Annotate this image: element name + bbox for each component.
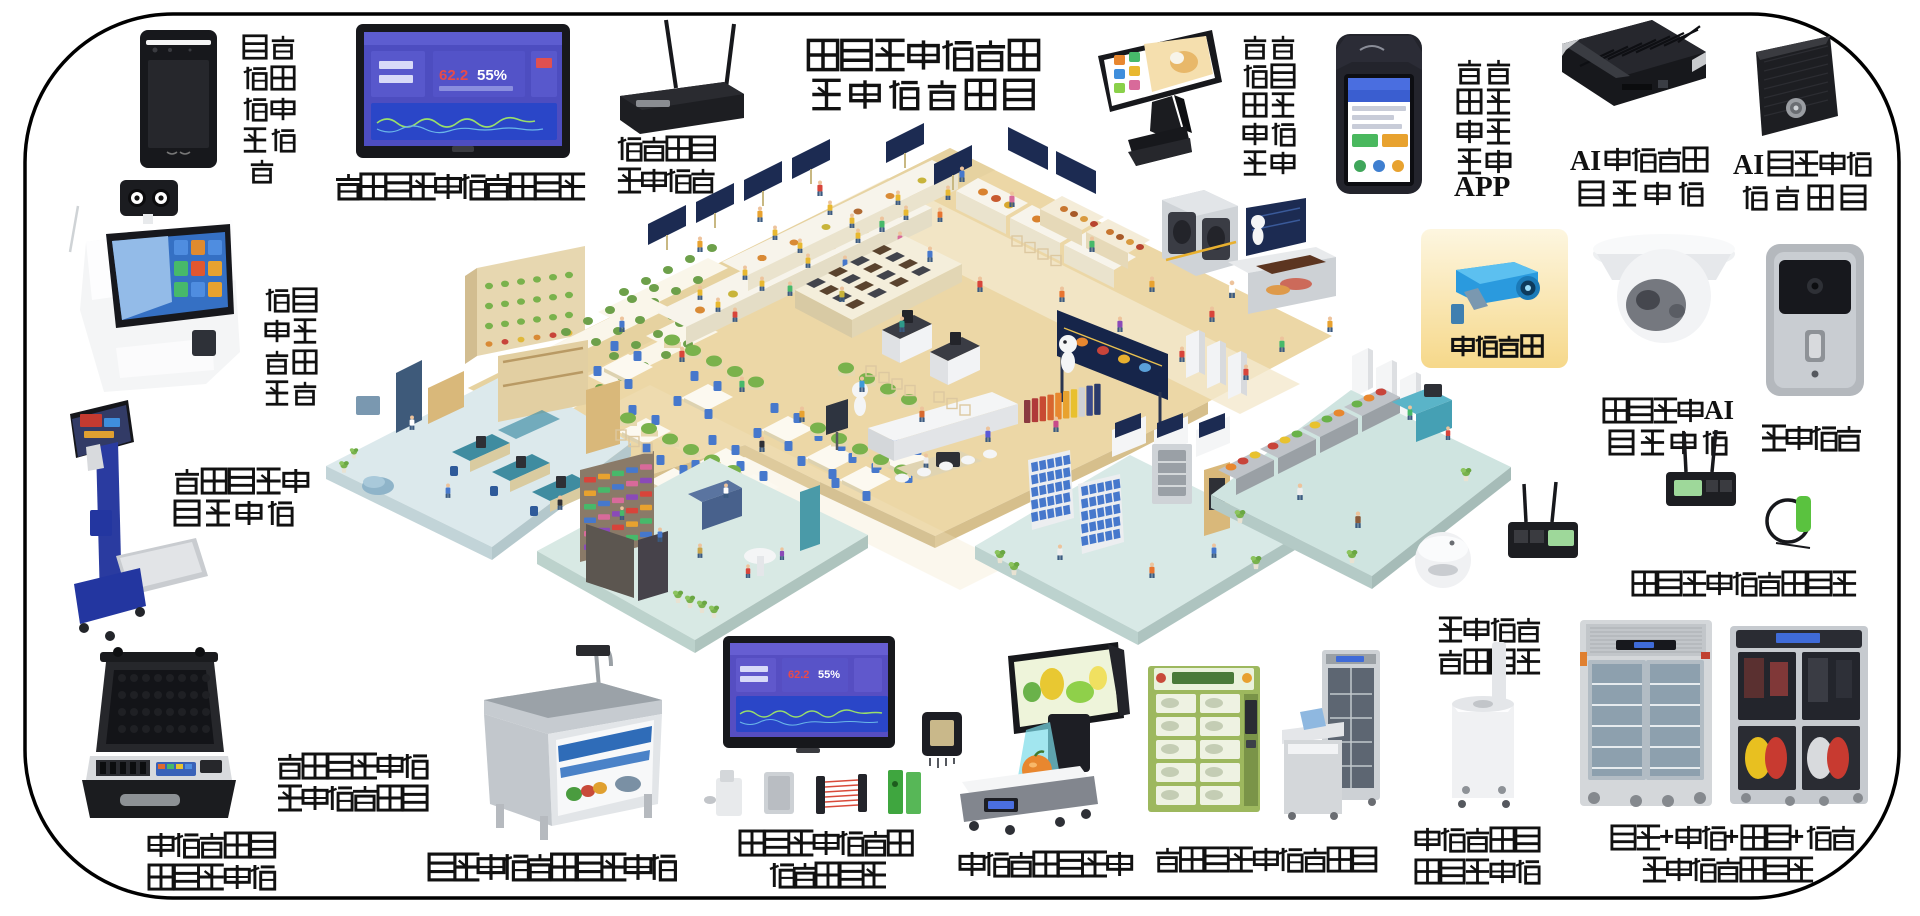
svg-text:APP: APP [1454,171,1510,203]
svg-text:55%: 55% [477,67,507,84]
svg-text:55%: 55% [818,669,840,681]
svg-text:+: + [1724,821,1739,851]
svg-text:AI: AI [1733,150,1764,181]
svg-text:AI: AI [1570,146,1601,177]
svg-text:62.2: 62.2 [788,669,809,681]
svg-text:AI: AI [1704,395,1734,425]
svg-text:+: + [1789,821,1804,851]
svg-text:62.2: 62.2 [439,67,468,84]
svg-text:+: + [1659,821,1674,851]
